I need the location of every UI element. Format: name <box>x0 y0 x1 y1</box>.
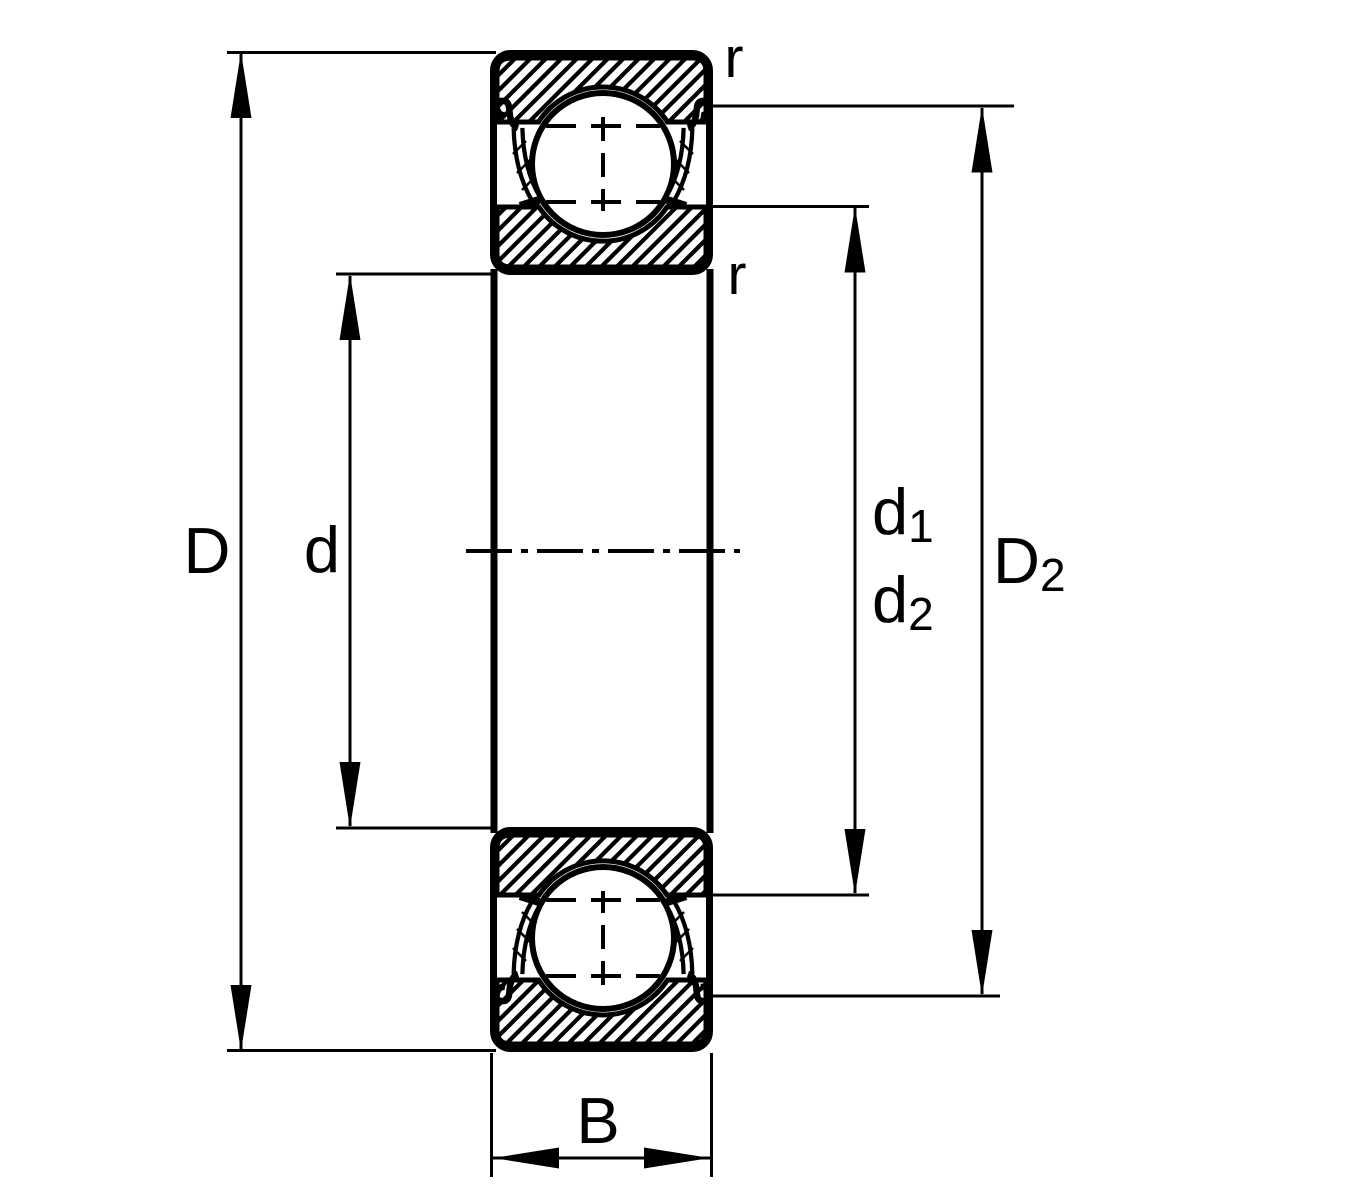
bearing-cross-section-svg: D d d1 d2 D2 B r r <box>0 0 1350 1200</box>
label-bore-diameter-d: d <box>304 513 340 586</box>
label-D2-main: D <box>993 524 1040 597</box>
label-d2-subscript: 2 <box>908 588 934 640</box>
bearing-dimension-drawing: D d d1 d2 D2 B r r <box>0 0 1350 1200</box>
label-d1-main: d <box>872 475 908 548</box>
label-fillet-radius-r-bottom: r <box>728 243 747 307</box>
label-outer-diameter-D: D <box>184 514 231 587</box>
label-fillet-radius-r-top: r <box>725 26 744 90</box>
bearing-section-top <box>494 54 710 272</box>
label-d1-subscript: 1 <box>908 500 934 552</box>
label-width-B: B <box>576 1084 619 1157</box>
label-D2-subscript: 2 <box>1040 549 1066 601</box>
label-d2-main: d <box>872 563 908 636</box>
bearing-section-bottom <box>494 831 710 1049</box>
